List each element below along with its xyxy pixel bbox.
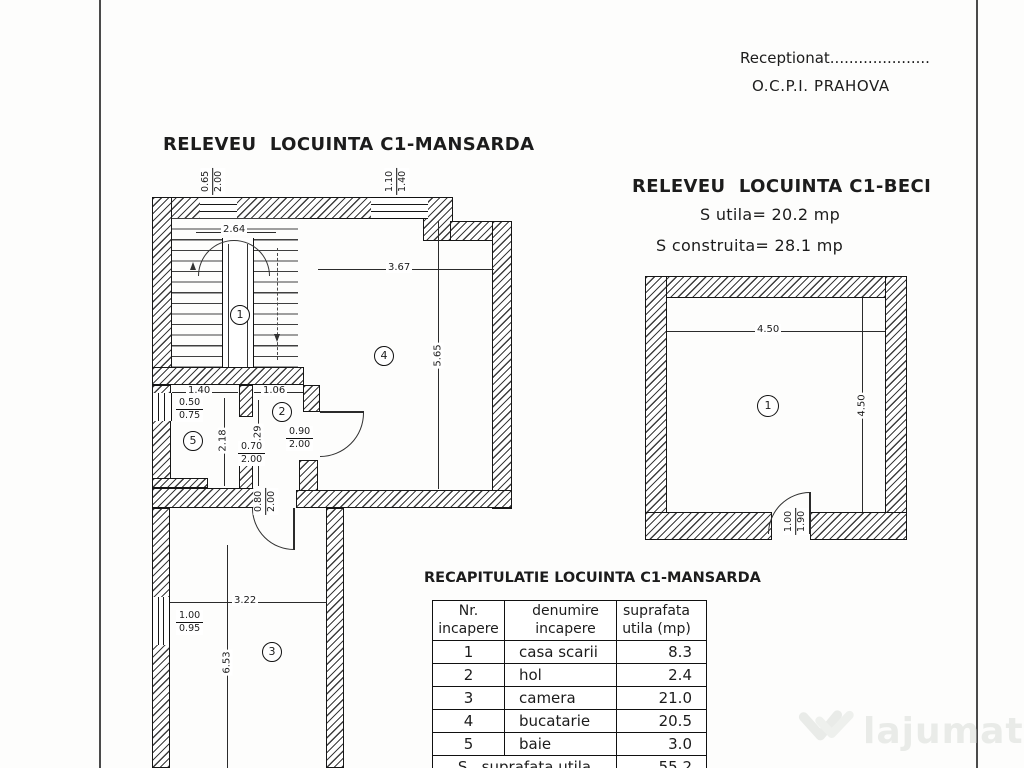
beci-built-area: S construita= 28.1 mp [656, 236, 843, 255]
total-label: S suprafata utila [433, 756, 617, 768]
cell-name: hol [505, 664, 617, 687]
col-header-name: denumire incapere [505, 601, 617, 641]
dim-numerator: 0.50 [176, 397, 203, 410]
cell-area: 2.4 [617, 664, 707, 687]
dim-numerator: 0.80 [254, 487, 267, 514]
wall-segment [152, 367, 304, 385]
wall-segment [645, 276, 667, 540]
cell-nr: 4 [433, 710, 505, 733]
table-row: 3 camera 21.0 [433, 687, 707, 710]
room-number-4: 4 [374, 346, 394, 366]
dim-denominator: 1.90 [797, 507, 809, 534]
room-number-3: 3 [262, 642, 282, 662]
cell-area: 21.0 [617, 687, 707, 710]
beci-useful-area: S utila= 20.2 mp [700, 205, 840, 224]
stair-direction-arrow [274, 334, 280, 342]
window-dimension: 0.500.75 [176, 397, 203, 422]
cell-area: 20.5 [617, 710, 707, 733]
dim-numerator: 0.70 [238, 441, 265, 454]
window-symbol [152, 597, 170, 645]
recap-header-row: Nr. incapere denumire incapere suprafata… [433, 601, 707, 641]
dimension-label: 1.40 [186, 385, 212, 396]
cell-nr: 3 [433, 687, 505, 710]
wall-segment [239, 385, 253, 417]
wall-segment [303, 385, 320, 412]
dim-denominator: 0.95 [176, 623, 203, 635]
room-number-2: 2 [272, 402, 292, 422]
door-leaf [293, 508, 295, 550]
wall-segment [326, 508, 344, 768]
cell-nr: 5 [433, 733, 505, 756]
window-symbol [200, 197, 237, 219]
dim-denominator: 2.00 [214, 167, 226, 194]
wall-segment [296, 490, 512, 508]
col-header-nr: Nr. incapere [433, 601, 505, 641]
receptionat-line: Receptionat..................... [740, 49, 930, 67]
dim-denominator: 0.75 [176, 410, 203, 422]
wall-segment [645, 512, 772, 540]
wall-segment [645, 276, 907, 298]
door-dimension: 0.702.00 [238, 441, 265, 466]
dimension-label: 1.06 [261, 385, 287, 396]
window-dimension: 1.101.40 [384, 164, 410, 198]
cell-area: 8.3 [617, 641, 707, 664]
dim-denominator: 2.00 [267, 487, 279, 514]
window-dimension: 1.000.95 [176, 610, 203, 635]
wall-segment [152, 478, 208, 488]
dimension-label: 3.22 [232, 595, 258, 606]
wall-segment [492, 221, 512, 509]
dimension-label-rotated: 4.50 [852, 388, 872, 422]
cell-name: baie [505, 733, 617, 756]
wall-segment [152, 488, 256, 508]
table-total-row: S suprafata utila 55.2 [433, 756, 707, 768]
cell-name: casa scarii [505, 641, 617, 664]
beci-title: RELEVEU LOCUINTA C1-BECI [632, 176, 931, 197]
table-row: 2 hol 2.4 [433, 664, 707, 687]
watermark-text: lajumate [863, 711, 1024, 752]
col-header-area: suprafata utila (mp) [617, 601, 707, 641]
dimension-label-rotated: 5.65 [428, 338, 448, 372]
wall-segment [885, 276, 907, 540]
dim-denominator: 2.00 [238, 454, 265, 466]
page-frame-left [99, 0, 101, 768]
window-dimension: 0.652.00 [200, 164, 226, 198]
cell-nr: 1 [433, 641, 505, 664]
room-number-1-beci: 1 [757, 395, 779, 417]
door-leaf [320, 411, 364, 413]
dimension-label: 4.50 [755, 324, 781, 335]
door-dimension-rotated: 0.802.00 [252, 480, 280, 522]
scanned-floor-plan-document: Receptionat..................... O.C.P.I… [0, 0, 1024, 768]
door-dimension-rotated: 1.001.90 [782, 500, 810, 542]
recap-title: RECAPITULATIE LOCUINTA C1-MANSARDA [424, 570, 761, 586]
dim-numerator: 0.90 [286, 426, 313, 439]
lajumate-logo-icon [797, 706, 857, 756]
table-row: 5 baie 3.0 [433, 733, 707, 756]
watermark: lajumate.ro [797, 706, 1024, 756]
room-number-5: 5 [183, 431, 203, 451]
total-value: 55.2 [617, 756, 707, 768]
window-symbol [152, 393, 172, 421]
dim-denominator: 1.40 [398, 167, 410, 194]
office-name: O.C.P.I. PRAHOVA [752, 77, 890, 95]
cell-name: bucatarie [505, 710, 617, 733]
dimension-label-rotated: 2.18 [213, 424, 233, 456]
cell-area: 3.0 [617, 733, 707, 756]
table-row: 1 casa scarii 8.3 [433, 641, 707, 664]
dimension-label: 3.67 [386, 262, 412, 273]
table-row: 4 bucatarie 20.5 [433, 710, 707, 733]
door-dimension: 0.902.00 [286, 426, 313, 451]
cell-nr: 2 [433, 664, 505, 687]
wall-segment [299, 460, 318, 492]
dim-denominator: 2.00 [286, 439, 313, 451]
wall-segment [810, 512, 907, 540]
dim-numerator: 0.65 [201, 167, 214, 194]
wall-segment [152, 197, 172, 385]
staircase-dashed-line [277, 248, 278, 360]
dim-numerator: 1.00 [784, 507, 797, 534]
stair-direction-arrow [190, 262, 196, 270]
dimension-label: 2.64 [221, 224, 247, 235]
dimension-label-rotated: 6.53 [217, 646, 237, 678]
dim-numerator: 1.00 [176, 610, 203, 623]
mansarda-title: RELEVEU LOCUINTA C1-MANSARDA [163, 134, 534, 155]
recap-table: Nr. incapere denumire incapere suprafata… [432, 600, 707, 768]
room-number-1: 1 [230, 305, 250, 325]
page-frame-right [976, 0, 978, 768]
dim-numerator: 1.10 [385, 167, 398, 194]
cell-name: camera [505, 687, 617, 710]
window-symbol [371, 197, 428, 219]
